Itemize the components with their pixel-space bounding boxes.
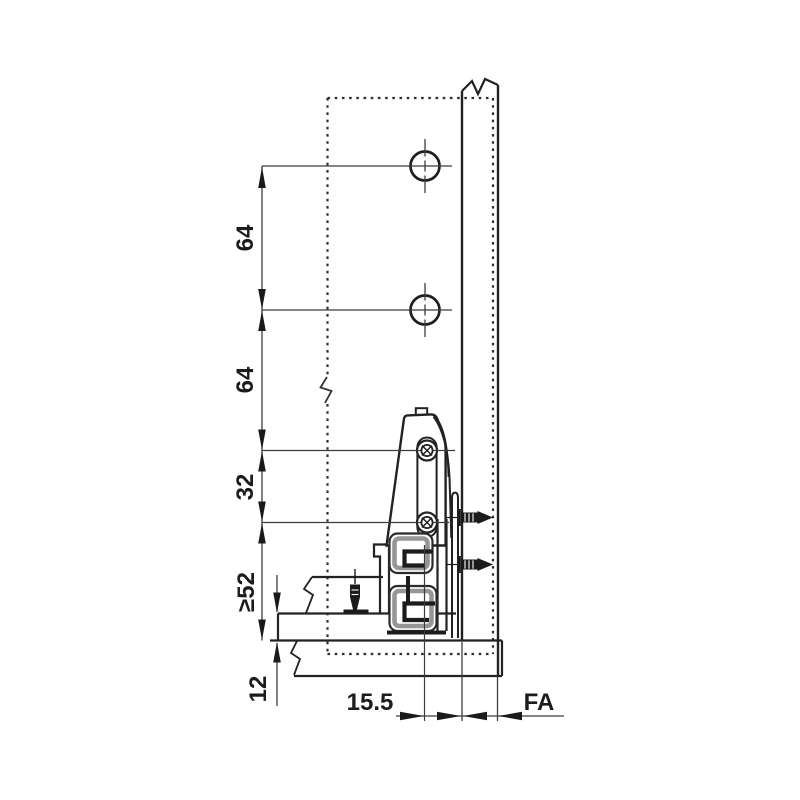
front-screw-upper xyxy=(446,509,493,526)
technical-drawing-canvas: 64 64 32 ≥52 12 15.5 FA xyxy=(0,0,800,800)
front-panel-section xyxy=(462,79,498,676)
dashed-line-break-symbol xyxy=(321,377,332,403)
panel-break-symbol xyxy=(462,79,498,94)
dim-label-fa: FA xyxy=(524,689,555,716)
profile-hook-lower xyxy=(390,576,437,631)
bracket-back-plate xyxy=(452,493,458,638)
dim-label-15-5: 15.5 xyxy=(347,689,394,716)
dimension-labels: 64 64 32 ≥52 12 15.5 FA xyxy=(232,224,554,716)
dimension-arrows xyxy=(258,167,522,720)
front-screw-lower xyxy=(446,556,493,573)
drawer-bottom-boards xyxy=(270,577,502,676)
drawer-front-fixing-diagram: 64 64 32 ≥52 12 15.5 FA xyxy=(0,0,800,800)
dim-label-12: 12 xyxy=(245,676,272,703)
profile-hook-upper xyxy=(390,534,433,574)
dim-label-64-upper: 64 xyxy=(232,224,259,251)
bracket-left-foot-step xyxy=(374,545,386,613)
dim-label-64-lower: 64 xyxy=(232,366,259,393)
dim-label-32: 32 xyxy=(232,474,259,501)
dim-label-min52: ≥52 xyxy=(233,572,260,612)
bottom-fixing-screw xyxy=(344,569,369,614)
